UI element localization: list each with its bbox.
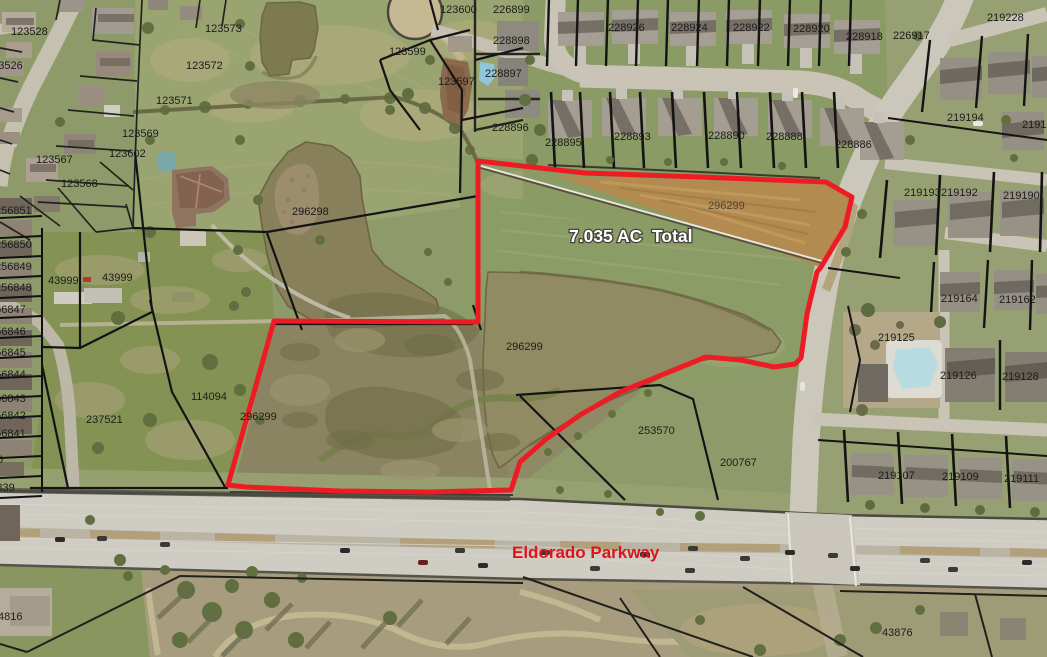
svg-text:256849: 256849 bbox=[0, 261, 32, 273]
svg-text:219164: 219164 bbox=[941, 293, 978, 305]
svg-text:219196: 219196 bbox=[1022, 119, 1047, 131]
svg-text:256847: 256847 bbox=[0, 304, 26, 316]
svg-text:256850: 256850 bbox=[0, 239, 32, 251]
svg-text:123573: 123573 bbox=[205, 23, 242, 35]
svg-text:123597: 123597 bbox=[438, 76, 475, 88]
svg-text:123571: 123571 bbox=[156, 95, 193, 107]
svg-text:Eldorado Parkway: Eldorado Parkway bbox=[512, 543, 660, 562]
svg-text:228888: 228888 bbox=[766, 131, 803, 143]
svg-text:123572: 123572 bbox=[186, 60, 223, 72]
svg-text:256842: 256842 bbox=[0, 410, 26, 422]
svg-text:256841: 256841 bbox=[0, 428, 26, 440]
svg-text:228886: 228886 bbox=[835, 139, 872, 151]
svg-text:123568: 123568 bbox=[61, 178, 98, 190]
svg-text:228920: 228920 bbox=[793, 23, 830, 35]
svg-text:228893: 228893 bbox=[614, 131, 651, 143]
svg-text:219162: 219162 bbox=[999, 294, 1036, 306]
svg-text:123599: 123599 bbox=[389, 46, 426, 58]
svg-text:296299: 296299 bbox=[506, 341, 543, 353]
svg-text:237521: 237521 bbox=[86, 414, 123, 426]
svg-text:228890: 228890 bbox=[708, 130, 745, 142]
svg-text:296298: 296298 bbox=[292, 206, 329, 218]
svg-text:123528: 123528 bbox=[11, 26, 48, 38]
svg-text:228922: 228922 bbox=[733, 22, 770, 34]
svg-text:114094: 114094 bbox=[191, 391, 227, 403]
svg-text:228895: 228895 bbox=[545, 137, 582, 149]
svg-text:228896: 228896 bbox=[492, 122, 529, 134]
svg-text:0: 0 bbox=[0, 454, 3, 466]
svg-text:43999: 43999 bbox=[48, 275, 79, 287]
svg-text:228897: 228897 bbox=[485, 68, 522, 80]
svg-text:123567: 123567 bbox=[36, 154, 73, 166]
svg-text:219128: 219128 bbox=[1002, 371, 1039, 383]
svg-text:123569: 123569 bbox=[122, 128, 159, 140]
svg-text:256843: 256843 bbox=[0, 393, 26, 405]
svg-text:256844: 256844 bbox=[0, 369, 26, 381]
svg-text:219228: 219228 bbox=[987, 12, 1024, 24]
svg-text:219107: 219107 bbox=[878, 470, 915, 482]
svg-text:7.035 AC Total: 7.035 AC Total bbox=[569, 226, 693, 246]
svg-text:200767: 200767 bbox=[720, 457, 757, 469]
svg-text:256846: 256846 bbox=[0, 326, 26, 338]
svg-text:256845: 256845 bbox=[0, 347, 26, 359]
svg-text:226899: 226899 bbox=[493, 4, 530, 16]
svg-text:219192: 219192 bbox=[941, 187, 978, 199]
svg-text:219125: 219125 bbox=[878, 332, 915, 344]
svg-text:228926: 228926 bbox=[608, 22, 645, 34]
svg-text:256851: 256851 bbox=[0, 205, 32, 217]
svg-text:296299: 296299 bbox=[240, 411, 277, 423]
svg-text:226917: 226917 bbox=[893, 30, 930, 42]
svg-text:219194: 219194 bbox=[947, 112, 984, 124]
svg-text:228918: 228918 bbox=[846, 31, 883, 43]
svg-text:228924: 228924 bbox=[671, 22, 708, 34]
svg-text:219126: 219126 bbox=[940, 370, 977, 382]
svg-text:123602: 123602 bbox=[109, 148, 146, 160]
svg-text:296299: 296299 bbox=[708, 200, 745, 212]
svg-text:123600: 123600 bbox=[440, 4, 477, 16]
svg-text:219109: 219109 bbox=[942, 471, 979, 483]
svg-text:228898: 228898 bbox=[493, 35, 530, 47]
svg-text:123526: 123526 bbox=[0, 60, 23, 72]
svg-text:4816: 4816 bbox=[0, 611, 22, 623]
svg-text:219190: 219190 bbox=[1003, 190, 1040, 202]
svg-text:256839: 256839 bbox=[0, 482, 15, 494]
svg-text:43999: 43999 bbox=[102, 272, 133, 284]
svg-text:256848: 256848 bbox=[0, 282, 32, 294]
svg-text:253570: 253570 bbox=[638, 425, 675, 437]
svg-text:219111: 219111 bbox=[1004, 473, 1039, 485]
svg-text:219193: 219193 bbox=[904, 187, 941, 199]
svg-text:43876: 43876 bbox=[882, 627, 913, 639]
